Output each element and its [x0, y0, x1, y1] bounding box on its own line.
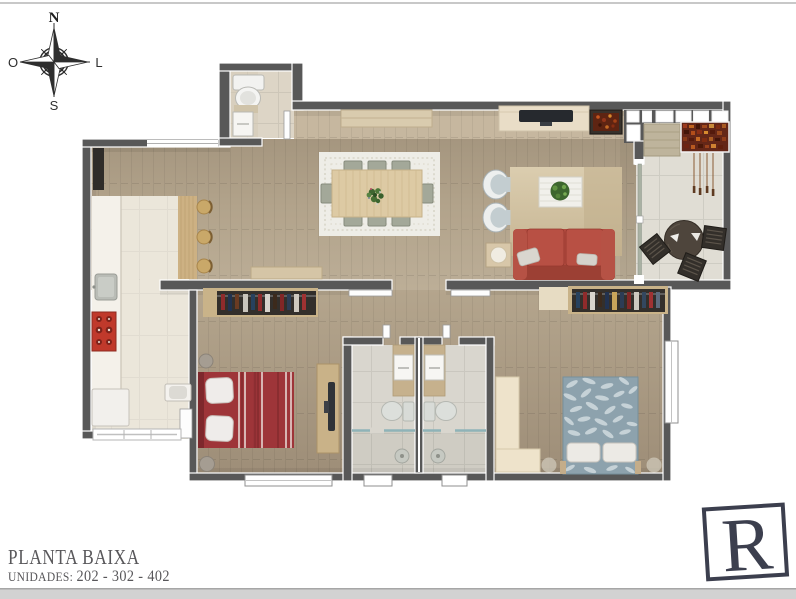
- svg-text:R: R: [719, 501, 775, 588]
- svg-text:UNIDADES: 202 - 302 - 402: UNIDADES: 202 - 302 - 402: [8, 569, 170, 586]
- svg-text:N: N: [49, 10, 60, 26]
- svg-text:S: S: [50, 98, 59, 113]
- svg-text:L: L: [95, 55, 102, 70]
- svg-text:O: O: [8, 55, 18, 70]
- svg-text:PLANTA BAIXA: PLANTA BAIXA: [8, 546, 140, 569]
